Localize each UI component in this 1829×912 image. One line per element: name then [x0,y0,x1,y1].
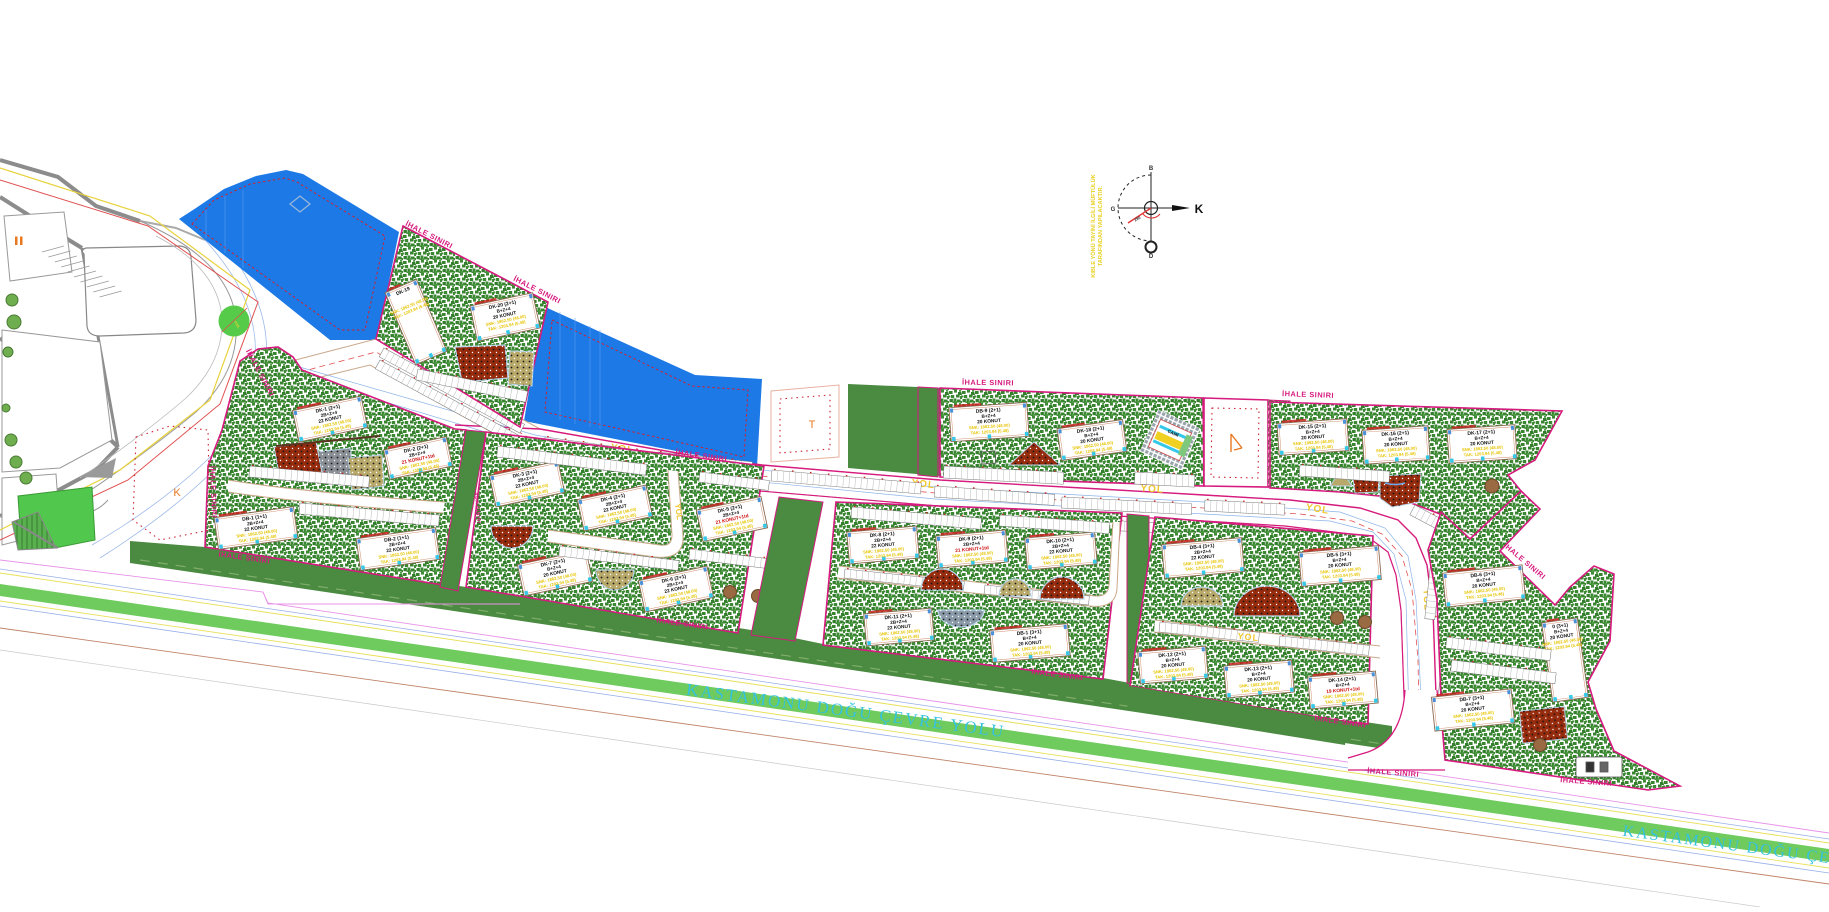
svg-text:TARAFINDAN YAPILACAKTIR.: TARAFINDAN YAPILACAKTIR. [1098,185,1104,266]
svg-text:B: B [1149,166,1154,172]
svg-text:B+Z+4: B+Z+4 [1474,435,1489,441]
svg-text:K: K [173,487,181,499]
svg-text:İHALE SINIRI: İHALE SINIRI [1282,389,1334,400]
svg-text:G: G [1111,207,1116,213]
svg-text:B+Z+4: B+Z+4 [1388,436,1403,442]
svg-text:İHALE SINIRI: İHALE SINIRI [962,378,1014,388]
svg-text:KIBLE YÖNÜ TAYİNİ İLGİLİ MÜFTÜ: KIBLE YÖNÜ TAYİNİ İLGİLİ MÜFTÜLÜK [1090,174,1097,277]
svg-text:D: D [1149,254,1154,260]
svg-text:K: K [1195,202,1204,216]
svg-text:B+Z+4: B+Z+4 [981,413,996,419]
svg-text:T: T [809,419,816,431]
svg-text:B+Z+4: B+Z+4 [1305,429,1320,435]
svg-text:▌▌: ▌▌ [15,236,25,246]
